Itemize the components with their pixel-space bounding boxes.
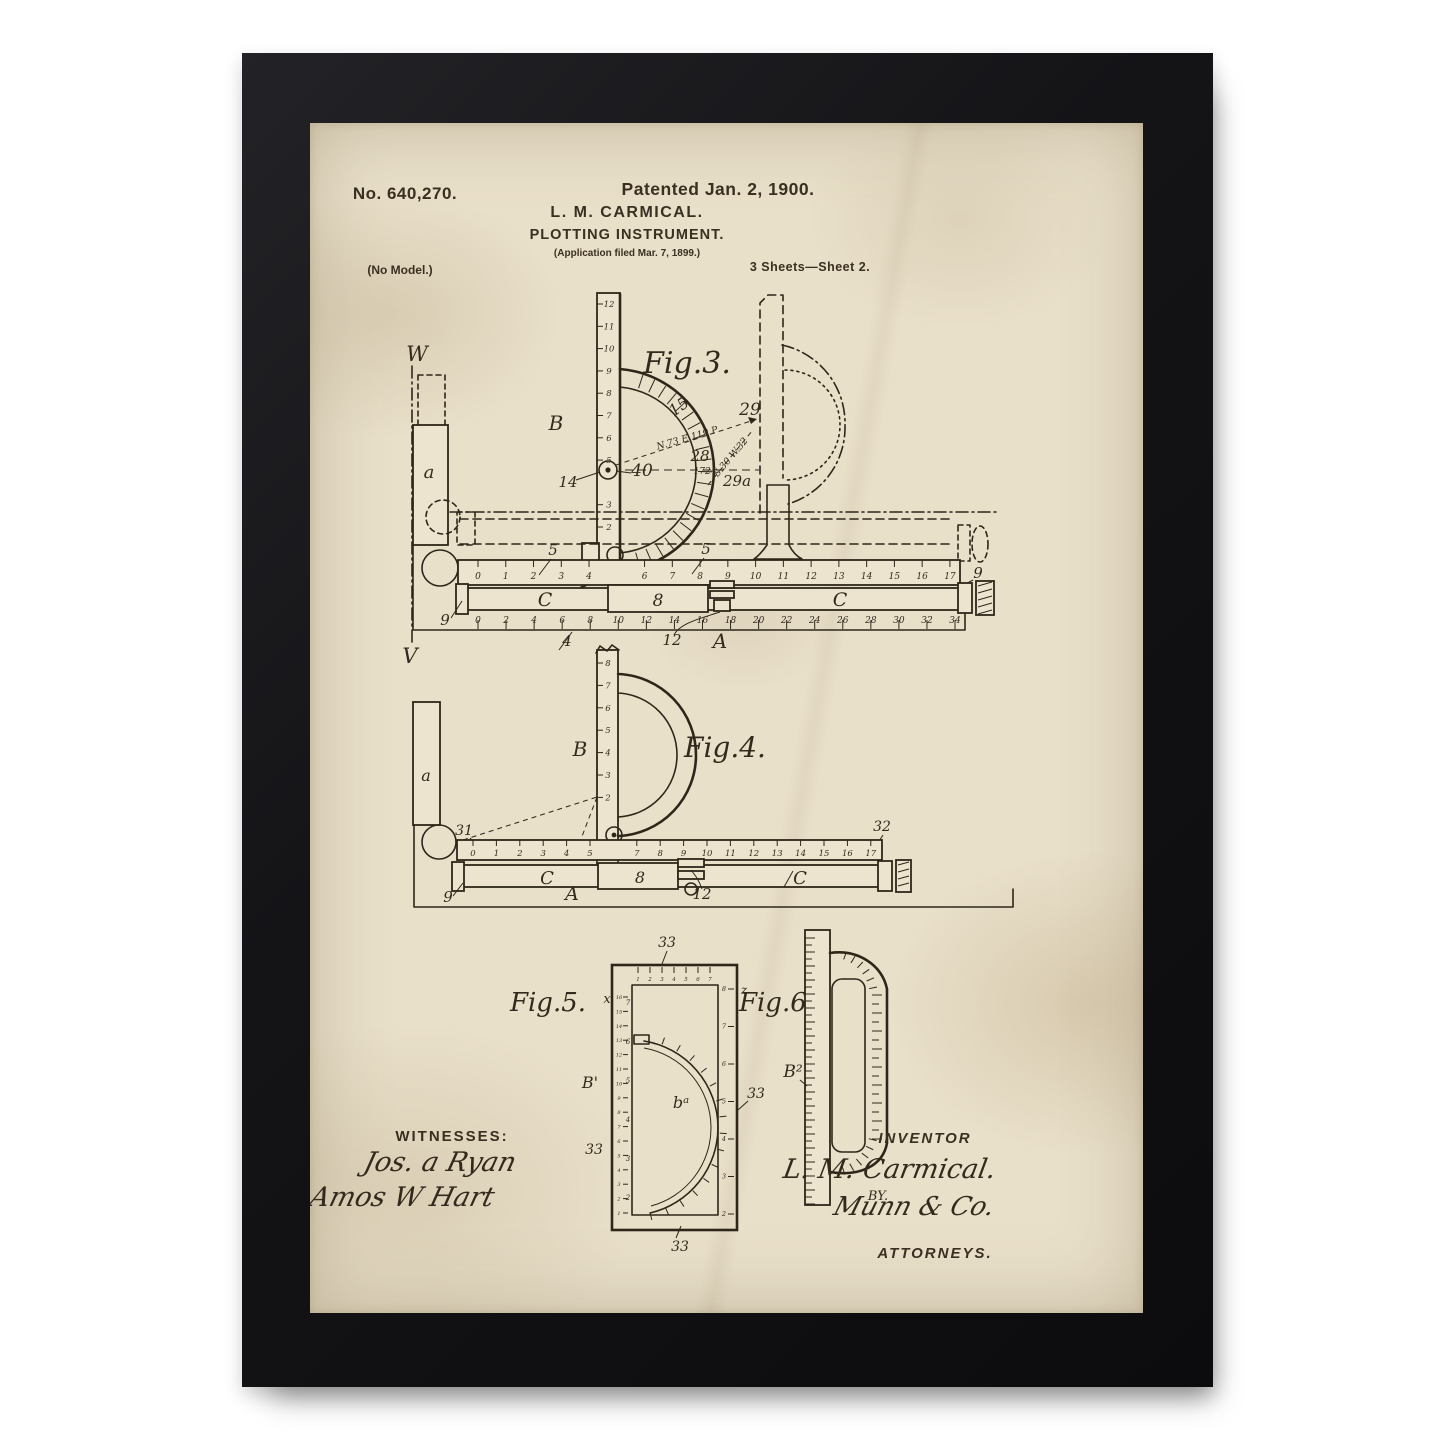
scale-number: 6: [642, 572, 648, 582]
no-model-note: (No Model.): [367, 263, 432, 277]
fig4-label-31: 31: [455, 823, 473, 839]
scale-number: 0: [470, 849, 476, 859]
figure-5: Fig.5. x 33 1234567 16151413121110987654…: [509, 935, 765, 1255]
scale-number: 8: [605, 659, 611, 669]
fig3-label-9-bottom: 9: [440, 611, 450, 629]
scale-number: 16: [916, 572, 928, 582]
witnesses-label: WITNESSES:: [395, 1128, 508, 1145]
inventor-name-header: L. M. CARMICAL.: [550, 204, 703, 221]
fig3-caption: Fig.3.: [642, 346, 731, 381]
fig4-label-32: 32: [873, 819, 891, 835]
tick: [851, 956, 855, 963]
scale-number: 13: [772, 849, 783, 859]
fig3-ghost-arc-outer: [782, 345, 845, 504]
fig3-label-1724: 1724: [694, 467, 717, 477]
scale-number: 8: [587, 616, 593, 626]
fig3-label-frame-a: A: [711, 629, 727, 653]
scale-number: 3: [606, 501, 611, 511]
scale-number: 3: [722, 1173, 726, 1181]
scale-number: 18: [725, 616, 737, 626]
scale-number: 2: [502, 616, 509, 626]
scale-number: 7: [708, 977, 712, 983]
tick: [869, 987, 877, 989]
fig3-label-c-right: C: [833, 589, 848, 611]
scale-number: 2: [616, 1197, 620, 1203]
fig3-clamp-bar-left-cap: [456, 584, 468, 614]
scale-number: 7: [669, 572, 675, 582]
scale-number: 24: [808, 616, 821, 626]
application-line: (Application filed Mar. 7, 1899.): [554, 248, 700, 259]
fig6-caption: Fig.6.: [738, 988, 815, 1018]
fig3-ghost-beam-right-end: [958, 525, 970, 561]
tick: [688, 423, 700, 430]
fig4-pivot-dot: [612, 833, 617, 838]
tick: [639, 375, 643, 388]
tick: [662, 1038, 664, 1045]
fig4-dashed-sightline-1: [463, 797, 597, 840]
scale-number: 8: [606, 389, 612, 399]
fig4-label-c-right: C: [793, 868, 807, 889]
scale-number: 6: [605, 704, 611, 714]
scale-number: 15: [819, 849, 830, 859]
scale-number: 4: [585, 572, 592, 582]
fig5-left-inner-scale: 765432: [625, 999, 631, 1202]
tick: [649, 380, 655, 393]
tick: [857, 962, 862, 968]
fig4-label-slider: 8: [635, 868, 645, 887]
fig3-ghost-bar: [760, 295, 783, 513]
scale-number: 12: [616, 1053, 622, 1059]
fig4-clamp-bar-left-cap: [452, 862, 464, 891]
patent-header: No. 640,270. Patented Jan. 2, 1900. L. M…: [353, 179, 870, 277]
picture-frame: No. 640,270. Patented Jan. 2, 1900. L. M…: [242, 53, 1213, 1387]
scale-number: 14: [669, 616, 681, 626]
scale-number: 20: [752, 616, 765, 626]
scale-number: 26: [836, 616, 849, 626]
fig4-clamp-bar-right-cap: [878, 861, 892, 891]
fig3-label-15: 15: [665, 393, 693, 420]
fig5-label-33-right: 33: [747, 1086, 765, 1102]
witness-signature-2: Amos W Hart: [310, 1182, 499, 1213]
scale-number: 12: [604, 300, 615, 310]
scale-number: 3: [540, 849, 545, 859]
scale-number: 5: [626, 1077, 631, 1085]
fig4-dashed-sightline-2: [581, 797, 597, 839]
scale-number: 8: [617, 1110, 620, 1116]
scale-number: 34: [949, 616, 961, 626]
fig5-label-33-bottom: 33: [671, 1239, 689, 1255]
scale-number: 15: [616, 1009, 622, 1015]
scale-number: 4: [625, 1116, 630, 1124]
fig5-leader-33-top: [662, 951, 667, 964]
tick: [691, 503, 704, 508]
fig5-arc-inner: [644, 1048, 711, 1206]
scale-number: 8: [722, 985, 726, 993]
fig3-label-5-left: 5: [548, 541, 558, 559]
tick: [666, 1208, 669, 1214]
fig6-label-b2: B²: [782, 1062, 802, 1082]
patent-title: PLOTTING INSTRUMENT.: [530, 227, 725, 243]
attorney-signature: Munn & Co.: [829, 1191, 999, 1221]
patent-paper: No. 640,270. Patented Jan. 2, 1900. L. M…: [310, 123, 1143, 1313]
scale-number: 6: [696, 977, 700, 983]
fig5-leader-33-bottom: [676, 1226, 681, 1238]
tick: [695, 493, 708, 497]
fig3-clamp-plate-1: [710, 581, 734, 588]
scale-number: 0: [475, 572, 481, 582]
scale-number: 0: [475, 616, 481, 626]
scale-number: 4: [721, 1135, 726, 1143]
scale-number: 6: [722, 1060, 726, 1068]
fig4-protractor-inner-arc: [618, 693, 677, 817]
attorneys-label: ATTORNEYS.: [876, 1245, 992, 1262]
patent-drawing: No. 640,270. Patented Jan. 2, 1900. L. M…: [310, 123, 1143, 1313]
scale-number: 3: [617, 1182, 620, 1188]
framed-patent-print-photo: No. 640,270. Patented Jan. 2, 1900. L. M…: [0, 0, 1445, 1445]
scale-number: 2: [516, 849, 522, 859]
scale-number: 17: [865, 849, 876, 859]
fig3-arm-pivot: [422, 550, 458, 586]
inventor-signature: L. M. Carmical.: [780, 1154, 998, 1185]
fig3-clamp-screw: [714, 600, 730, 611]
fig5-label-33-left: 33: [585, 1142, 603, 1158]
scale-number: 14: [861, 572, 873, 582]
scale-number: 1: [503, 572, 509, 582]
fig5-arc-outer: [644, 1041, 718, 1213]
fig3-clamp-plate-2: [710, 591, 734, 598]
fig3-ghost-knob: [972, 526, 988, 562]
tick: [866, 1146, 873, 1149]
scale-number: 15: [889, 572, 901, 582]
tick: [703, 1178, 709, 1182]
scale-number: 6: [606, 434, 612, 444]
scale-number: 2: [604, 793, 610, 803]
fig3-label-c-left: C: [538, 589, 553, 611]
fig4-label-b: B: [572, 737, 588, 761]
scale-number: 9: [606, 367, 612, 377]
scale-number: 9: [681, 849, 687, 859]
fig3-label-12: 12: [662, 631, 681, 649]
scale-number: 11: [725, 849, 736, 859]
scale-number: 32: [921, 616, 933, 626]
witness-signature-1: Jos. a Ryan: [356, 1147, 520, 1178]
fig5-label-x: x: [603, 992, 611, 1007]
scale-number: 2: [625, 1194, 631, 1202]
scale-number: 6: [617, 1139, 621, 1145]
tick: [677, 1045, 681, 1051]
scale-number: 2: [605, 523, 611, 533]
scale-number: 11: [778, 572, 789, 582]
scale-number: 2: [647, 977, 652, 983]
fig3-label-14: 14: [558, 473, 577, 491]
scale-number: 11: [616, 1067, 622, 1073]
scale-number: 16: [842, 849, 853, 859]
scale-number: 5: [587, 849, 592, 859]
scale-number: 12: [641, 616, 653, 626]
fig3-label-a: a: [424, 462, 435, 483]
scale-number: 14: [795, 849, 806, 859]
fig3-label-b: B: [548, 411, 564, 435]
scale-number: 14: [616, 1024, 622, 1030]
tick: [719, 1116, 726, 1117]
scale-number: 7: [634, 849, 640, 859]
fig4-clamp-plate-2: [678, 871, 704, 879]
scale-number: 3: [605, 771, 610, 781]
scale-number: 22: [780, 616, 793, 626]
tick: [863, 969, 870, 974]
fig4-clamp-plate-1: [678, 859, 704, 867]
tick: [656, 544, 663, 556]
scale-number: 11: [604, 322, 615, 332]
figure-4: Fig.4. a 8765432 B 31: [413, 645, 1013, 907]
fig5-left-outer-scale: 16151413121110987654321: [616, 995, 628, 1217]
fig3-label-w: W: [406, 342, 430, 366]
fig5-leader-33-right: [738, 1101, 748, 1110]
fig5-top-scale: 1234567: [636, 967, 712, 983]
fig5-label-33-top: 33: [658, 935, 676, 951]
scale-number: 4: [604, 749, 610, 759]
scale-number: 5: [605, 726, 610, 736]
witnesses-block: WITNESSES: Jos. a Ryan Amos W Hart: [310, 1128, 520, 1213]
fig3-clamp-foot: [754, 485, 802, 559]
fig3-arm: [413, 425, 448, 545]
scale-number: 3: [626, 1155, 631, 1163]
tick: [680, 1201, 684, 1207]
scale-number: 8: [657, 849, 663, 859]
fig5-arc-notch: [634, 1035, 649, 1044]
tick: [701, 1068, 706, 1072]
fig3-label-9-top: 9: [973, 564, 983, 582]
fig5-label-b-prime: B': [581, 1073, 598, 1092]
scale-number: 16: [616, 995, 623, 1001]
fig6-curve-ticks: [872, 995, 882, 1139]
fig6-curved-arm-slot: [832, 979, 865, 1152]
tick: [680, 522, 691, 531]
scale-number: 28: [864, 616, 877, 626]
scale-number: 10: [604, 345, 615, 355]
sheet-info: 3 Sheets—Sheet 2.: [750, 260, 870, 274]
scale-number: 10: [702, 849, 713, 859]
fig3-clamp-bar-right-cap: [958, 583, 972, 613]
tick: [712, 1164, 718, 1167]
scale-number: 7: [606, 412, 612, 422]
scale-number: 4: [530, 616, 537, 626]
fig5-right-scale: 8765432: [721, 985, 734, 1218]
tick: [690, 1055, 695, 1060]
scale-number: 1: [494, 849, 499, 859]
scale-number: 9: [617, 1096, 621, 1102]
fig4-arm-pivot: [422, 825, 456, 859]
scale-number: 10: [613, 616, 625, 626]
fig3-label-v: V: [402, 644, 419, 668]
tick: [650, 1213, 651, 1220]
figure-3: Fig.3. W V a 1211109876532 B: [402, 293, 1000, 668]
scale-number: 10: [616, 1081, 623, 1087]
scale-number: 2: [530, 572, 537, 582]
scale-number: 2: [721, 1210, 726, 1218]
scale-number: 30: [893, 616, 905, 626]
fig4-label-c-left: C: [540, 868, 554, 889]
tick: [867, 978, 874, 981]
fig5-label-ba: bᵃ: [673, 1093, 689, 1112]
patent-number: No. 640,270.: [353, 184, 457, 203]
scale-number: 3: [660, 977, 664, 983]
scale-number: 7: [605, 681, 611, 691]
scale-number: 6: [626, 1038, 631, 1046]
scale-number: 13: [616, 1038, 622, 1044]
scale-number: 13: [833, 572, 845, 582]
scale-number: 1: [617, 1211, 620, 1217]
fig3-label-40: 40: [630, 461, 653, 481]
tick: [658, 386, 666, 398]
fig3-label-29a: 29a: [722, 472, 751, 490]
fig3-label-29: 29: [738, 400, 761, 420]
scale-number: 6: [559, 616, 565, 626]
fig3-ghost-arm: [418, 375, 445, 427]
scale-number: 4: [671, 977, 676, 983]
scale-number: 4: [563, 849, 569, 859]
scale-number: 7: [617, 1125, 621, 1131]
fig5-caption: Fig.5.: [509, 988, 586, 1018]
scale-number: 3: [558, 572, 564, 582]
inventor-label: INVENTOR: [878, 1130, 971, 1147]
fig3-label-slider: 8: [653, 591, 664, 611]
tick: [693, 1191, 698, 1196]
fig3-ghost-arc-inner: [785, 370, 840, 480]
fig4-label-9: 9: [443, 888, 453, 906]
scale-number: 8: [697, 572, 703, 582]
scale-number: 7: [626, 999, 631, 1007]
fig3-bottom-scale: 0246810121416182022242628303234: [475, 616, 961, 629]
fig4-label-frame-a: A: [563, 883, 579, 905]
fig3-pivot-dot: [605, 467, 610, 472]
scale-number: 5: [684, 977, 688, 983]
scale-number: 4: [616, 1168, 620, 1174]
tick: [673, 531, 683, 541]
fig3-label-5-right: 5: [701, 540, 711, 558]
scale-number: 5: [617, 1153, 620, 1159]
scale-number: 12: [805, 572, 817, 582]
patent-date: Patented Jan. 2, 1900.: [622, 179, 815, 199]
scale-number: 7: [722, 1023, 727, 1031]
fig3-label-28: 28: [689, 447, 709, 465]
tick: [710, 1083, 716, 1086]
scale-number: 10: [750, 572, 762, 582]
fig4-arm: [413, 702, 440, 825]
fig4-label-a: a: [421, 766, 431, 785]
scale-number: 1: [636, 977, 640, 983]
scale-number: 17: [944, 572, 956, 582]
scale-number: 12: [748, 849, 759, 859]
